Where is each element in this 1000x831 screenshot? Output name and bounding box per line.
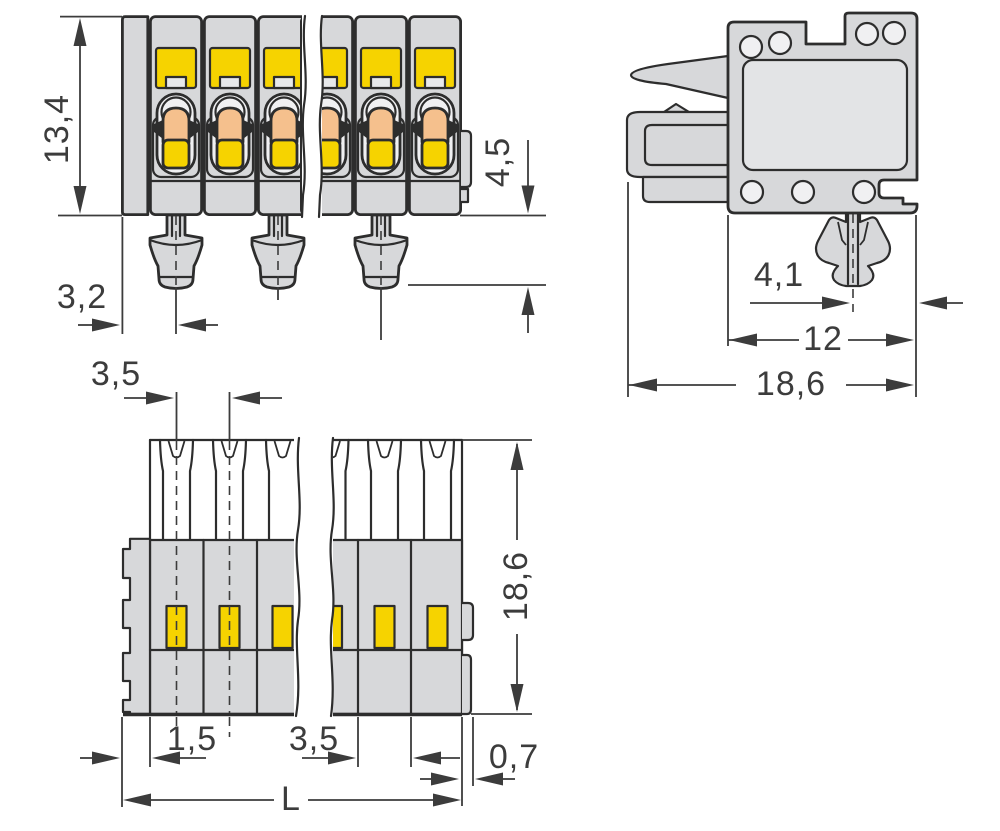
dim-bottom-wall: 0,7 <box>489 740 539 774</box>
marking-hole <box>856 23 878 45</box>
front-view <box>58 14 546 340</box>
plug-step <box>643 177 728 202</box>
break-gap <box>294 436 333 718</box>
dim-bottom-length: L <box>281 782 301 816</box>
locking-lever <box>631 56 728 98</box>
right-side-step <box>461 189 468 202</box>
dim-front-left-offset: 3,2 <box>57 280 107 314</box>
marking-hole <box>792 181 814 203</box>
front-left-flange <box>122 17 147 215</box>
snap-in-foot <box>355 215 407 289</box>
side-panel <box>743 60 907 170</box>
plug-section <box>627 112 728 177</box>
terminal-unit <box>355 17 406 215</box>
terminal-unit <box>204 17 255 215</box>
latch-bump <box>664 104 689 112</box>
pin-column <box>368 440 401 540</box>
marking-hole <box>741 181 763 203</box>
bottom-housing <box>123 392 473 737</box>
pin-column <box>421 440 454 540</box>
dim-side-total-depth: 18,6 <box>756 367 826 401</box>
front-housing <box>122 14 471 289</box>
terminal-unit <box>150 17 201 215</box>
right-side-tab <box>461 131 471 187</box>
bottom-left-flange <box>123 539 150 714</box>
dim-bottom-edge-offset: 1,5 <box>167 722 217 756</box>
right-wall-strip <box>462 655 471 714</box>
snap-in-foot <box>252 215 304 289</box>
dim-bottom-pitch: 3,5 <box>289 722 339 756</box>
right-side-tab <box>462 603 473 640</box>
dim-front-height: 13,4 <box>40 94 74 164</box>
contact-slot <box>273 606 293 648</box>
dim-front-pin-length: 4,5 <box>481 137 515 187</box>
dim-bottom-height: 18,6 <box>499 551 533 621</box>
dim-side-body-depth: 12 <box>803 322 843 356</box>
snap-in-foot <box>150 215 202 289</box>
dim-side-foot-offset: 4,1 <box>754 258 804 292</box>
contact-slot <box>428 606 448 648</box>
dim-bottom-pitch-top: 3,5 <box>91 357 141 391</box>
technical-drawing-canvas: 13,4 3,2 4,5 4,1 12 18,6 3,5 18,6 1,5 3,… <box>0 0 1000 831</box>
drawing-linework <box>0 0 1000 831</box>
marking-hole <box>853 181 875 203</box>
marking-hole <box>769 32 791 54</box>
contact-slot <box>375 606 395 648</box>
mounting-foot <box>816 213 890 312</box>
marking-hole <box>883 22 905 44</box>
marking-hole <box>740 36 762 58</box>
terminal-unit <box>409 17 460 215</box>
side-view <box>627 13 963 397</box>
